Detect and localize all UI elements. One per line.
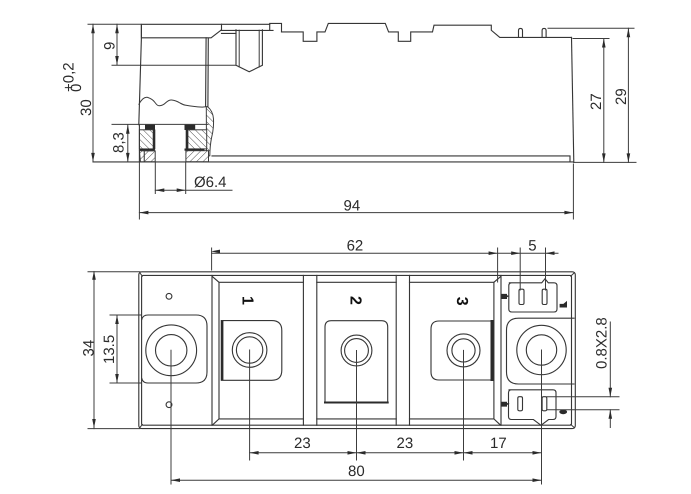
svg-text:9: 9 bbox=[102, 42, 119, 50]
svg-text:0: 0 bbox=[68, 84, 85, 92]
svg-text:3: 3 bbox=[453, 297, 470, 306]
svg-text:34: 34 bbox=[81, 340, 98, 357]
svg-text:23: 23 bbox=[294, 435, 311, 452]
svg-text:62: 62 bbox=[347, 238, 364, 255]
svg-text:13.5: 13.5 bbox=[101, 335, 118, 364]
svg-text:1: 1 bbox=[238, 296, 255, 305]
svg-text:2: 2 bbox=[347, 296, 364, 305]
svg-text:29: 29 bbox=[613, 88, 630, 105]
svg-text:5: 5 bbox=[528, 238, 536, 255]
svg-text:30: 30 bbox=[78, 99, 95, 116]
svg-text:94: 94 bbox=[344, 198, 361, 215]
svg-text:8,3: 8,3 bbox=[111, 132, 128, 153]
svg-text:Ø6.4: Ø6.4 bbox=[194, 174, 227, 191]
svg-text:0.8X2.8: 0.8X2.8 bbox=[594, 317, 611, 369]
svg-text:27: 27 bbox=[588, 93, 605, 110]
svg-text:80: 80 bbox=[348, 463, 365, 480]
svg-text:23: 23 bbox=[397, 435, 414, 452]
svg-text:17: 17 bbox=[490, 435, 507, 452]
